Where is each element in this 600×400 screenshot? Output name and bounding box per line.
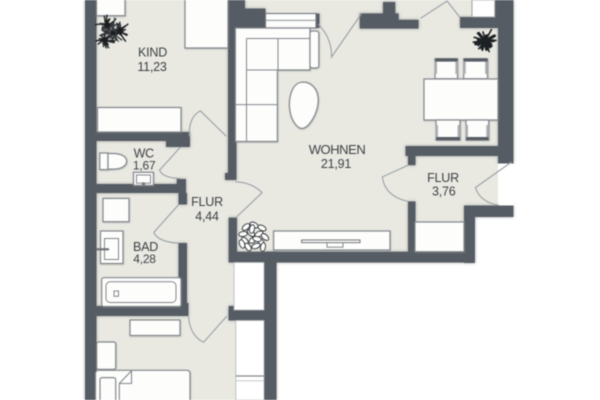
svg-text:WOHNEN: WOHNEN	[309, 142, 366, 157]
svg-text:KIND: KIND	[138, 46, 167, 60]
svg-text:4,44: 4,44	[195, 210, 219, 224]
svg-text:FLUR: FLUR	[427, 171, 459, 185]
svg-text:FLUR: FLUR	[191, 195, 223, 209]
svg-text:3,76: 3,76	[432, 185, 456, 199]
svg-text:1,67: 1,67	[133, 159, 156, 173]
svg-text:11,23: 11,23	[137, 60, 167, 74]
svg-text:21,91: 21,91	[321, 157, 352, 171]
svg-text:4,28: 4,28	[133, 252, 156, 266]
